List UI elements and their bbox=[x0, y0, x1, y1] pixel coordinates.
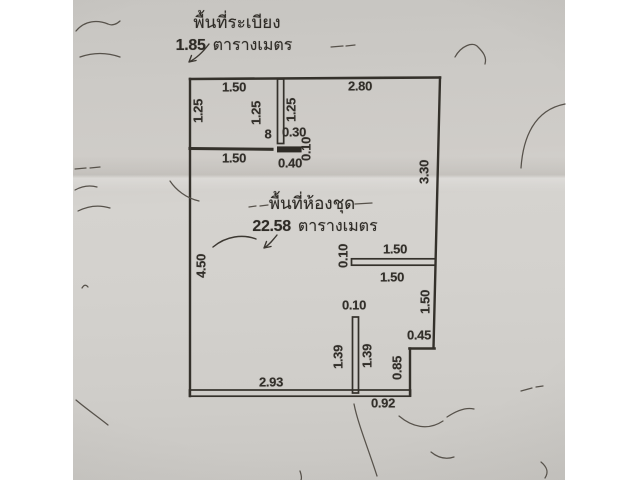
dim-balcony-top-width: 1.50 bbox=[222, 81, 246, 94]
dim-right-upper-height: 3.30 bbox=[418, 160, 431, 184]
balcony-area-value: 1.85 bbox=[176, 37, 206, 54]
dim-divider-right-height: 1.25 bbox=[285, 98, 298, 122]
squiggle-left-3 bbox=[75, 186, 97, 190]
dim-notch-thickness: 0.10 bbox=[300, 137, 313, 161]
squiggle-bottom-mid-3 bbox=[431, 452, 454, 458]
squiggle-right-arc bbox=[521, 104, 565, 168]
dim-stub-top-thickness: 0.10 bbox=[342, 299, 366, 312]
dim-step-height: 0.85 bbox=[391, 356, 404, 380]
dash-right-of-unit-title bbox=[355, 203, 372, 204]
unit-area-value: 22.58 bbox=[252, 218, 291, 235]
unit-area-title: พื้นที่ห้องชุด bbox=[269, 194, 355, 214]
dim-wall-gap: 8 bbox=[265, 128, 272, 141]
dim-stub-left-height: 1.39 bbox=[332, 345, 345, 369]
dim-balcony-bottom-width: 1.50 bbox=[222, 152, 246, 165]
scanned-page: พื้นที่ระเบียง 1.85ตารางเมตร พื้นที่ห้อง… bbox=[0, 0, 640, 480]
balcony-area-unit: ตารางเมตร bbox=[213, 37, 293, 54]
dash-right-of-balcony-title bbox=[331, 45, 355, 47]
dim-right-mid-height: 1.50 bbox=[419, 290, 432, 314]
dim-balcony-inner-height: 1.25 bbox=[250, 101, 263, 125]
squiggle-hook-top bbox=[455, 44, 486, 64]
wall-middle-partition bbox=[352, 259, 436, 265]
wall-balcony-bottom bbox=[190, 149, 272, 150]
dash-left-of-unit-title bbox=[249, 205, 268, 207]
squiggle-left-4 bbox=[78, 206, 110, 211]
squiggle-top-left-2 bbox=[80, 54, 120, 58]
squiggle-below-plan bbox=[354, 404, 377, 476]
dim-stub-right-height: 1.39 bbox=[361, 344, 374, 368]
leader-arrow-unit bbox=[264, 235, 277, 248]
wall-interior-stub bbox=[353, 317, 359, 393]
dim-bottom-left-width: 2.93 bbox=[259, 376, 283, 389]
dim-step-width: 0.45 bbox=[407, 329, 431, 342]
dim-mid-wall-bottom-width: 1.50 bbox=[380, 271, 404, 284]
dim-top-right-width: 2.80 bbox=[348, 80, 372, 93]
squiggle-top-left bbox=[76, 21, 120, 31]
balcony-area-title: พื้นที่ระเบียง bbox=[193, 13, 280, 33]
unit-area-value-line: 22.58ตารางเมตร bbox=[252, 218, 377, 236]
wall-right bbox=[434, 78, 441, 349]
dim-mid-wall-top-width: 1.50 bbox=[383, 243, 407, 256]
dim-bottom-right-width: 0.92 bbox=[371, 397, 395, 410]
unit-area-unit: ตารางเมตร bbox=[298, 218, 378, 235]
floor-plan-drawing bbox=[0, 0, 640, 480]
squiggle-bottom-left bbox=[76, 400, 108, 425]
dim-mid-wall-thickness: 0.10 bbox=[337, 244, 350, 268]
balcony-area-value-line: 1.85ตารางเมตร bbox=[176, 37, 293, 55]
pen-squiggles bbox=[75, 21, 565, 480]
squiggle-left-tiny bbox=[82, 285, 88, 288]
squiggle-bottom-mid-2 bbox=[447, 408, 474, 417]
squiggle-bottom-tick bbox=[300, 471, 301, 480]
leader-arc-unit bbox=[213, 236, 256, 247]
squiggle-left-dashes bbox=[75, 167, 100, 169]
squiggle-cross-wall bbox=[170, 181, 199, 201]
squiggle-bottom-right bbox=[541, 462, 547, 478]
squiggle-bottom-mid-1 bbox=[399, 416, 443, 427]
dim-balcony-left-height: 1.25 bbox=[192, 99, 205, 123]
dim-left-height: 4.50 bbox=[195, 254, 208, 278]
squiggle-right-dashes bbox=[521, 386, 543, 391]
